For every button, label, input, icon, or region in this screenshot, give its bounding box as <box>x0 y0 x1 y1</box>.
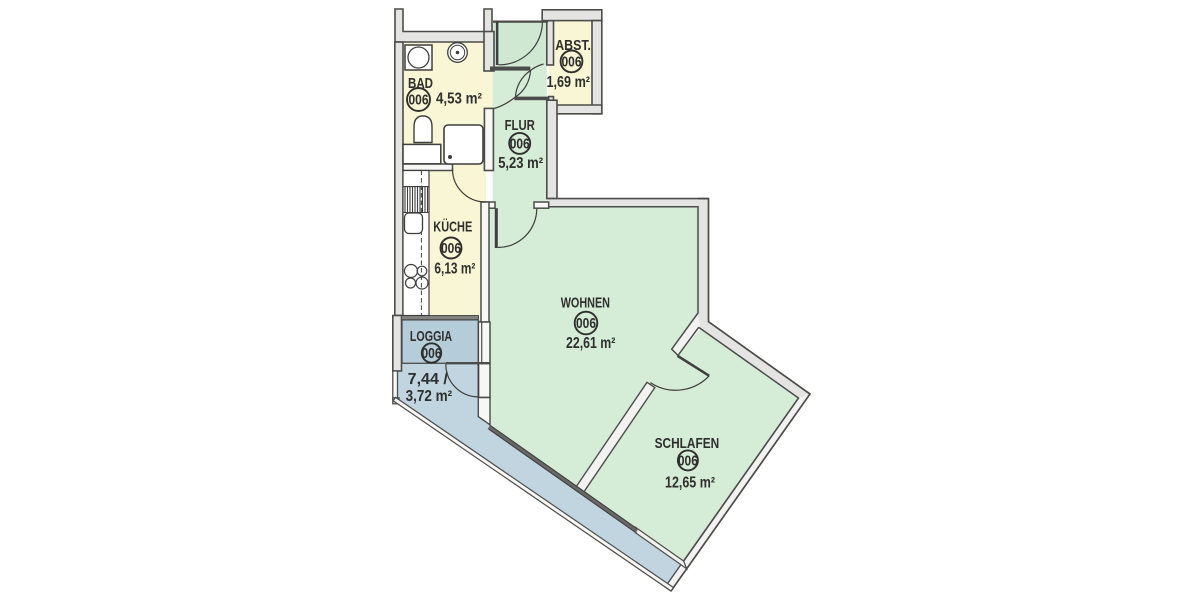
svg-text:7,44 /: 7,44 / <box>408 371 449 388</box>
svg-text:006: 006 <box>562 54 582 70</box>
svg-text:006: 006 <box>441 241 461 257</box>
svg-text:KÜCHE: KÜCHE <box>433 219 472 236</box>
svg-text:4,53 m²: 4,53 m² <box>436 91 482 108</box>
svg-text:006: 006 <box>510 136 530 152</box>
svg-text:006: 006 <box>678 453 698 469</box>
svg-text:FLUR: FLUR <box>505 117 535 134</box>
svg-text:1,69 m²: 1,69 m² <box>547 74 591 91</box>
svg-text:006: 006 <box>409 93 429 109</box>
svg-text:3,72 m²: 3,72 m² <box>406 388 453 405</box>
svg-text:6,13 m²: 6,13 m² <box>434 261 475 278</box>
svg-text:WOHNEN: WOHNEN <box>561 295 610 312</box>
svg-text:006: 006 <box>422 346 442 362</box>
svg-text:SCHLAFEN: SCHLAFEN <box>655 435 720 452</box>
svg-text:006: 006 <box>576 316 596 332</box>
svg-text:12,65 m²: 12,65 m² <box>665 475 715 492</box>
svg-text:5,23 m²: 5,23 m² <box>498 155 543 172</box>
svg-text:22,61 m²: 22,61 m² <box>566 335 615 352</box>
